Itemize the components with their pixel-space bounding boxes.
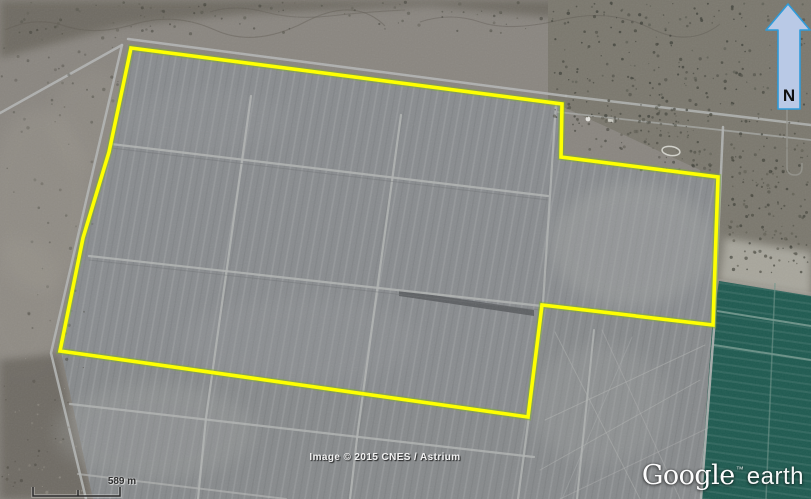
logo-earth-text: earth bbox=[747, 463, 804, 491]
google-earth-viewport: N 589 m Image © 2015 CNES / Astrium Goog… bbox=[0, 0, 811, 499]
logo-trademark: ™ bbox=[736, 465, 744, 474]
north-label: N bbox=[783, 86, 795, 105]
google-earth-logo: Google ™ earth bbox=[642, 460, 804, 491]
scale-bar-label: 589 m bbox=[92, 476, 152, 487]
logo-google-text: Google bbox=[642, 460, 735, 491]
satellite-map[interactable]: N bbox=[0, 0, 811, 499]
image-grain bbox=[0, 0, 811, 499]
